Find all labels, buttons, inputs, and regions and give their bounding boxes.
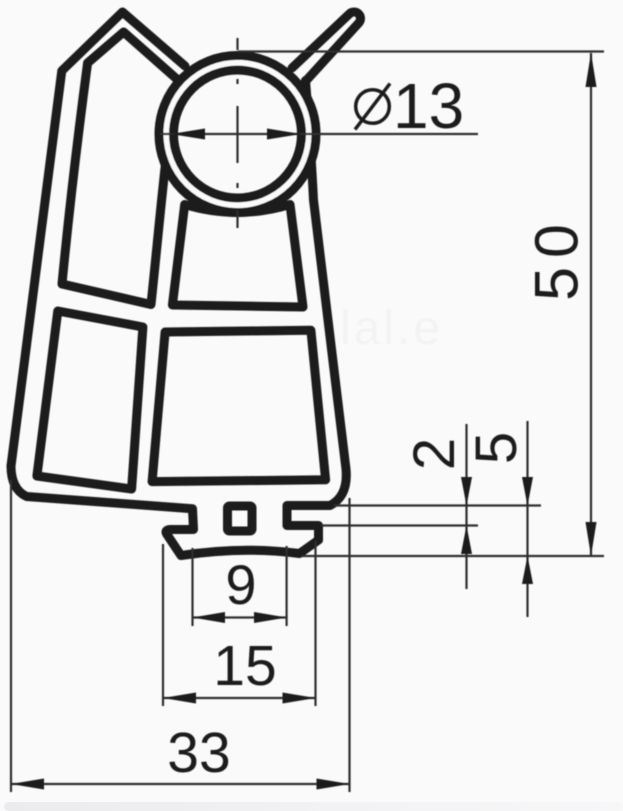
svg-text:15: 15 [213,634,276,698]
svg-text:lal.e: lal.e [340,302,443,355]
svg-text:5: 5 [464,432,529,464]
svg-text:33: 33 [167,721,230,785]
svg-text:50: 50 [523,215,591,301]
svg-text:9: 9 [225,553,256,616]
svg-text:13: 13 [393,70,464,142]
svg-text:2: 2 [402,438,467,470]
